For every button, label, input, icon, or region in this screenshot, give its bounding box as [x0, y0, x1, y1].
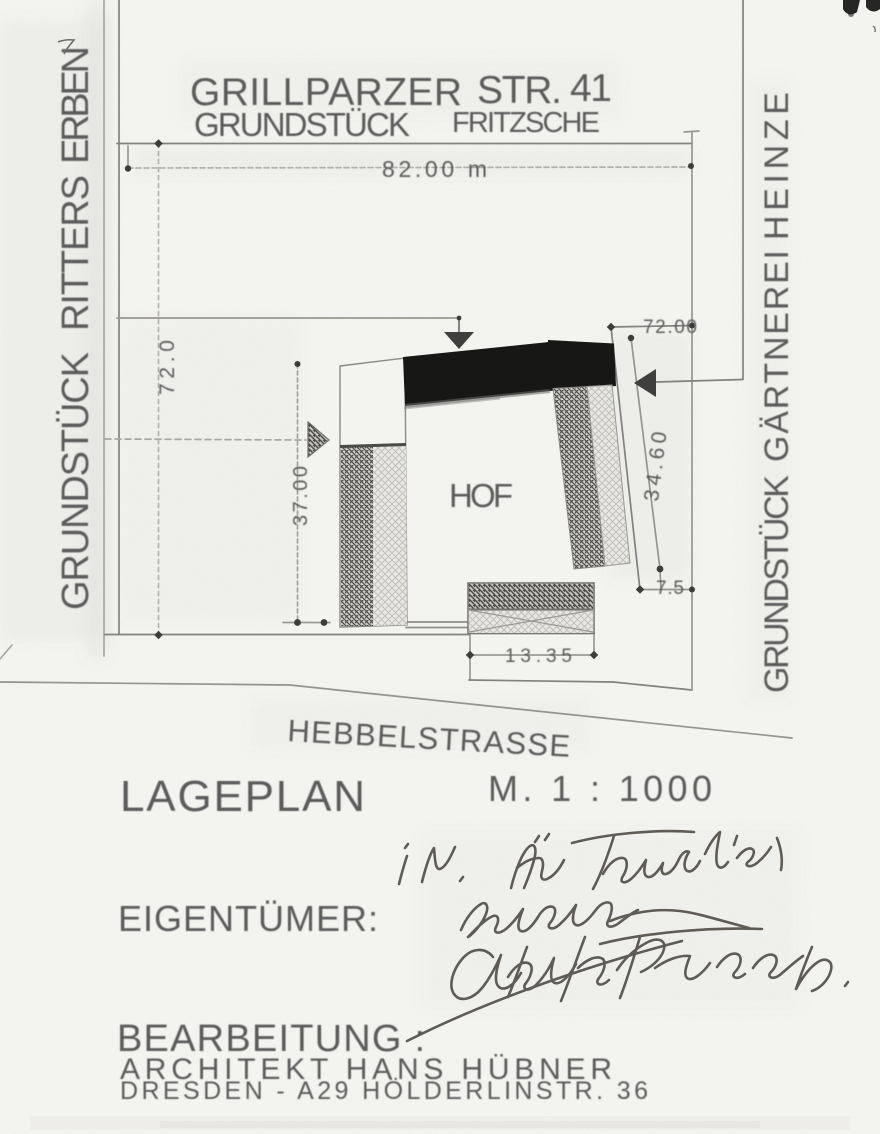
svg-text:HOF: HOF	[449, 477, 513, 514]
svg-text:GRUNDSTÜCK: GRUNDSTÜCK	[55, 352, 97, 610]
svg-text:41: 41	[570, 67, 612, 110]
svg-text:DRESDEN - A29 HÖLDERLINSTR. 36: DRESDEN - A29 HÖLDERLINSTR. 36	[120, 1077, 648, 1105]
svg-text:72.0: 72.0	[156, 340, 179, 395]
svg-text:FRITZSCHE: FRITZSCHE	[452, 107, 600, 139]
svg-text:LAGEPLAN: LAGEPLAN	[120, 772, 365, 821]
svg-text:EIGENTÜMER:: EIGENTÜMER:	[118, 898, 378, 939]
svg-text:RITTERS: RITTERS	[55, 175, 97, 331]
svg-text:GÄRTNEREI: GÄRTNEREI	[758, 250, 796, 462]
svg-text:37.00: 37.00	[290, 466, 312, 526]
svg-text:13.35: 13.35	[505, 646, 572, 667]
svg-text:82.00 m: 82.00 m	[382, 156, 487, 182]
svg-text:HEINZE: HEINZE	[758, 92, 796, 240]
svg-text:STR.: STR.	[477, 69, 562, 112]
svg-text:7.5: 7.5	[656, 578, 684, 599]
svg-text:72.00: 72.00	[643, 317, 697, 338]
svg-text:GRUNDSTÜCK: GRUNDSTÜCK	[194, 106, 410, 143]
svg-text:GRUNDSTÜCK: GRUNDSTÜCK	[758, 475, 796, 693]
svg-text:ERBEN: ERBEN	[55, 46, 97, 164]
